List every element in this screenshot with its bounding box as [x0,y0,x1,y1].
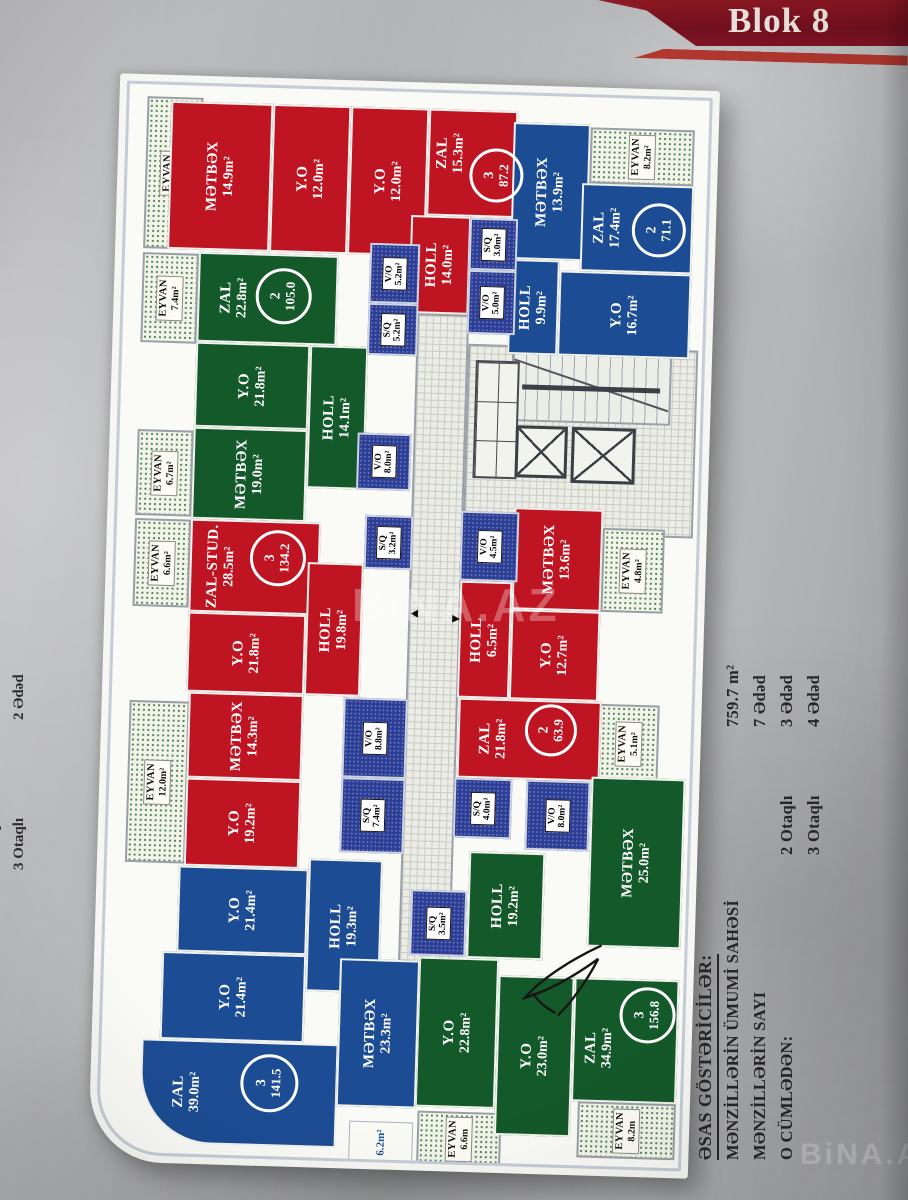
room-m-tb-x: MƏTBƏX14.9m² [167,101,273,252]
room-eyvan: EYVAN8.2m² [589,127,695,186]
room-name: ZAL [170,1075,187,1108]
apartment-badge-text: 3156.8 [632,1000,663,1030]
elevator-icon [514,425,568,479]
room-area: 12.0m² [388,161,405,202]
room-area: 6.7m² [164,461,176,485]
room-name: MƏTBƏX [619,827,638,898]
room-label: MƏTBƏX14.9m² [203,141,237,212]
apartment-badge-text: 3141.5 [254,1068,285,1098]
photo-background: { "banner": { "title": "Blok 8" }, "wate… [0,0,908,1200]
legend-rval: 2 Ədəd [11,674,28,720]
apartment-total-area: 87.2 [497,164,512,187]
legend-row: O CÜMLƏDƏN:2 Otaqlı3 Ədəd [777,620,804,1160]
room-area: 17.4m² [607,208,624,249]
room-area: 7.4m² [170,286,182,310]
room-y-o: Y.O21.4m² [160,951,307,1043]
legend-rlab: MƏNZİLLƏRİN ÜMUMİ SAHƏSİ [723,855,743,1160]
apartment-room-count: 3 [481,172,497,179]
room-area: 21.8m² [246,633,263,674]
room-area: 19.2m² [243,803,260,844]
legend-rlab: MƏNZİLLƏRİN SAYI [750,855,770,1160]
room-label: EYVAN4.8m² [619,548,647,594]
room-eyvan: EYVAN6.6m² [132,518,191,608]
legend-right: ƏSAS GÖSTƏRİCİLƏR: MƏNZİLLƏRİN ÜMUMİ SAH… [695,620,845,1160]
room-label: MƏTBƏX14.3m² [228,701,262,772]
room-area: 21.4m² [242,890,259,931]
room-name: V/O [384,265,395,282]
room-label: V/O8.8m² [362,721,388,754]
apartment-total-area: 71.1 [659,219,674,242]
room-area: 5.2m² [394,262,405,285]
room-y-o: Y.O16.7m² [557,270,691,359]
room-name: Y.O [217,983,234,1010]
room-eyvan: EYVAN7.4m² [140,252,199,344]
room-name: MƏTBƏX [541,524,560,595]
room-name: ZAL [434,136,451,169]
door-arrow-icon: ◀ [410,608,418,619]
room-label: V/O5.2m² [382,257,408,290]
room-area: 6.2m² [374,1129,387,1156]
floorplan-sheet: ◀ ▶ EYVAN10.8m²EYVAN7.4m²EYVAN6.7m²EYVAN… [88,73,720,1178]
room-area: 8.2m [626,1120,638,1141]
room-area: 14.9m² [220,156,237,197]
room-area: 25.0m² [636,843,653,884]
room-holl: HOLL6.5m² [457,581,512,699]
room-name: HOLL [517,284,535,330]
legend-rlab: 3 Otaqlı [11,720,28,870]
room-y-o: Y.O12.0m² [269,104,351,254]
room-name: MƏTBƏX [228,701,247,772]
room-area: 4.8m² [633,559,645,583]
room-area: 13.6m² [557,539,574,580]
room-name: MƏTBƏX [361,998,380,1069]
room-y-o: Y.O21.8m² [194,342,310,430]
room-eyvan: EYVAN8.2m [576,1101,676,1160]
room-s-q: S/Q3.0m² [469,218,519,271]
room-area: 5.1m² [629,732,641,756]
room-label: 6.2m² [374,1129,387,1156]
apartment-total-area: 134.2 [278,544,293,574]
legend-row: MƏNZİLLƏRİN ÜMUMİ SAHƏSİ759.7 m² [723,620,750,1160]
room-area: 3.0m² [493,233,504,256]
blok-banner: Blok 8 [632,0,908,46]
room-name: MƏTBƏX [533,156,552,227]
room-name: MƏTBƏX [203,141,222,212]
room-eyvan: EYVAN12.0m² [125,700,190,864]
room-area: 21.4m² [233,977,250,1018]
room-label: ZAL17.4m² [590,207,623,248]
room-name: V/O [364,729,375,746]
legend-rows: MƏNZİLLƏRİN ÜMUMİ SAHƏSİ759.7 m²MƏNZİLLƏ… [723,620,831,1160]
room-name: Y.O [236,372,253,399]
legend-rmid: 2 Otaqlı [777,727,797,855]
room-label: V/O5.0m² [479,286,505,319]
room-area: 19.3m² [344,906,361,947]
room-m-tb-x: MƏTBƏX25.0m² [587,777,686,950]
legend-row: 3 Otaqlı4 Ədəd [804,620,831,1160]
room-label: Y.O21.4m² [216,976,249,1017]
room-area: 6.6m² [162,551,174,575]
room-s-q: S/Q5.2m² [367,303,419,356]
room-label: EYVAN12.0m² [143,759,171,805]
room-y-o: Y.O22.8m² [415,957,499,1109]
room-name: Y.O [518,1042,535,1069]
room-name: EYVAN [158,279,171,317]
apartment-room-count: 2 [536,726,552,733]
room-name: Y.O [538,642,555,669]
room-label: HOLL9.9m² [517,284,550,330]
legend-left: 2 Otaqlı2 Ədəd3 Otaqlı2 Ədəd [0,570,38,870]
room-name: ZAL [590,211,607,244]
room-y-o: Y.O19.2m² [184,778,302,869]
room-label: Y.O12.0m² [294,158,327,199]
room-name: EYVAN [617,725,630,763]
room-area: 8.0m² [557,804,568,827]
room-y-o: Y.O21.8m² [186,612,306,695]
room-name: S/Q [362,808,373,824]
room-label: ZAL22.8m² [217,277,250,318]
room-name: MƏTBƏX [232,439,251,510]
room-label: EYVAN6.7m² [150,450,178,496]
room-name: Y.O [608,301,625,328]
room-name: Y.O [226,897,243,924]
room-label: S/Q3.5m² [425,906,451,939]
room-name: EYVAN [150,544,163,582]
legend-row: 2 Otaqlı2 Ədəd [0,570,11,870]
room-s-q: S/Q4.0m² [453,778,513,840]
room-area: 19.8m² [334,609,351,650]
room-area: 21.8m² [252,366,269,407]
room-y-o: Y.O23.0m² [494,975,575,1137]
room-area: 14.3m² [245,716,262,757]
room-label: EYVAN5.1m² [615,721,643,767]
room-v-o: V/O8.0m² [524,780,590,852]
legend-rmid: 3 Otaqlı [804,727,824,855]
room-area: 13.9m² [550,171,567,212]
room-area: 8.2m² [642,145,654,169]
room-area: 22.8m² [234,278,251,319]
room-area: 14.0m² [440,245,457,286]
balcony-strip: 6.2m² [348,1121,413,1165]
legend-rlab: 2 Otaqlı [0,720,3,870]
room-label: V/O8.0m² [371,445,397,478]
room-label: HOLL6.5m² [468,617,501,663]
room-name: V/O [481,294,492,311]
staircase [510,349,672,426]
room-area: 22.8m² [457,1013,474,1054]
room-label: EYVAN8.2m [612,1108,640,1154]
room-m-tb-x: MƏTBƏX13.9m² [510,122,591,261]
room-name: V/O [547,807,558,824]
room-name: Y.O [294,165,311,192]
legend-rval: 2 Ədəd [0,674,3,720]
room-label: MƏTBƏX13.9m² [533,156,567,227]
room-area: 19.0m² [249,454,266,495]
room-area: 14.1m² [337,397,354,438]
room-name: Y.O [441,1019,458,1046]
room-name: V/O [479,538,490,555]
room-area: 23.3m² [378,1013,395,1054]
room-label: Y.O21.8m² [230,633,263,674]
room-area: 21.8m² [493,719,510,760]
room-name: Y.O [230,640,247,667]
room-area: 3.5m² [438,912,449,935]
room-name: ZAL [217,281,234,314]
room-name: HOLL [423,242,441,288]
room-label: ZAL15.3m² [434,132,467,173]
room-name: EYVAN [630,138,643,176]
room-holl: HOLL19.2m² [466,851,545,960]
room-label: V/O8.0m² [545,799,571,832]
room-s-q: S/Q7.4m² [339,777,405,854]
room-label: Y.O16.7m² [608,294,641,335]
room-area: 5.2m² [392,318,403,341]
room-name: Y.O [226,810,243,837]
room-area: 12.0m² [157,767,169,796]
room-name: S/Q [382,322,393,338]
room-label: MƏTBƏX25.0m² [619,827,653,898]
room-name: S/Q [428,915,439,931]
room-label: EYVAN6.6m [445,1116,473,1162]
apartment-badge-text: 271.1 [644,219,674,243]
room-area: 23.0m² [534,1036,551,1077]
legend-rval: 4 Ədəd [804,675,824,727]
room-m-tb-x: MƏTBƏX19.0m² [191,427,308,522]
room-name: S/Q [472,800,483,816]
apartment-badge-text: 263.9 [536,719,566,743]
room-label: V/O4.5m² [476,530,502,563]
apartment-room-count: 2 [644,226,660,233]
room-label: Y.O21.4m² [226,890,259,931]
room-label: EYVAN6.6m² [148,540,176,586]
room-v-o: V/O5.0m² [467,270,517,335]
plan-area: ◀ ▶ EYVAN10.8m²EYVAN7.4m²EYVAN6.7m²EYVAN… [95,81,713,1172]
legend-rval: 759.7 m² [723,665,743,727]
room-s-q: S/Q3.5m² [409,889,467,957]
room-area: 15.3m² [451,133,468,174]
room-label: HOLL14.1m² [321,394,354,440]
room-m-tb-x: MƏTBƏX13.6m² [512,507,604,612]
room-area: 28.5m² [221,546,238,587]
room-name: V/O [373,453,384,470]
banner-title: Blok 8 [728,1,830,41]
room-label: S/Q3.0m² [480,228,506,261]
door-arrow-icon: ▶ [452,613,460,624]
room-label: S/Q5.2m² [380,313,406,346]
room-label: ZAL34.9m² [583,1027,616,1068]
room-name: HOLL [468,617,486,663]
room-label: MƏTBƏX19.0m² [232,439,266,510]
room-name: S/Q [483,237,494,253]
room-name: ZAL [477,722,494,755]
room-m-tb-x: MƏTBƏX23.3m² [336,958,420,1108]
room-area: 3.2m² [388,531,399,554]
room-label: HOLL19.2m² [489,882,522,928]
apartment-total-area: 156.8 [648,1001,663,1031]
room-v-o: V/O5.2m² [369,243,421,304]
room-area: 19.2m² [506,885,523,926]
room-label: EYVAN7.4m² [156,275,184,321]
room-y-o: Y.O12.7m² [509,609,601,702]
room-label: MƏTBƏX23.3m² [361,998,395,1069]
room-name: EYVAN [447,1120,460,1158]
room-area: 16.7m² [624,295,641,336]
room-label: EYVAN8.2m² [628,134,656,180]
room-area: 5.0m² [491,291,502,314]
apartment-total-area: 105.0 [284,282,299,312]
room-label: HOLL19.8m² [317,606,350,652]
room-name: EYVAN [614,1112,627,1150]
stair-landing-bar [522,384,659,393]
room-s-q: S/Q3.2m² [364,515,414,570]
room-name: S/Q [378,535,389,551]
room-area: 4.0m² [482,797,493,820]
room-label: Y.O19.2m² [226,803,259,844]
room-area: 6.6m [459,1128,471,1149]
room-eyvan: EYVAN6.7m² [135,429,194,517]
room-area: 39.0m² [187,1072,204,1113]
room-name: EYVAN [153,454,166,492]
room-label: Y.O22.8m² [440,1012,473,1053]
room-eyvan: EYVAN6.6m [416,1111,502,1167]
room-label: Y.O12.0m² [372,161,405,202]
room-m-tb-x: MƏTBƏX14.3m² [186,692,304,781]
room-area: 6.5m² [485,623,501,657]
room-label: MƏTBƏX13.6m² [541,524,575,595]
banner-stripe [634,48,908,66]
room-label: HOLL19.3m² [327,903,360,949]
room-name: HOLL [489,882,507,928]
room-area: 8.0m² [384,451,395,474]
room-label: HOLL14.0m² [423,242,456,288]
room-label: Y.O23.0m² [518,1035,551,1076]
room-y-o: Y.O21.4m² [176,865,308,955]
apartment-badge-text: 387.2 [481,164,511,188]
room-area: 4.5m² [489,535,500,558]
room-name: ZAL-STUD. [204,524,223,609]
room-name: ZAL [583,1031,600,1064]
room-label: Y.O21.8m² [236,365,269,406]
room-area: 8.8m² [374,727,385,750]
room-v-o: V/O8.0m² [356,433,412,492]
legend-row: 3 Otaqlı2 Ədəd [11,570,36,870]
room-area: 12.7m² [555,635,572,676]
room-name: HOLL [317,606,335,652]
room-area: 9.9m² [534,291,550,325]
room-area: 12.0m² [310,159,327,200]
legend-rval: 7 Ədəd [750,675,770,727]
room-eyvan: EYVAN5.1m² [597,704,659,784]
room-holl: HOLL19.8m² [304,562,364,697]
room-name: EYVAN [621,552,634,590]
room-zal: ZAL39.0m² [139,1038,339,1148]
apartment-badge-text: 2105.0 [268,281,299,311]
room-name: Y.O [372,168,389,195]
room-label: ZAL39.0m² [170,1071,203,1112]
elevator-icon [570,427,636,485]
apartment-total-area: 63.9 [551,719,566,742]
room-label: S/Q7.4m² [359,799,385,832]
room-label: ZAL21.8m² [477,718,510,759]
room-area: 7.4m² [372,804,383,827]
room-name: HOLL [321,394,339,440]
room-v-o: V/O4.5m² [459,511,519,583]
legend-row: MƏNZİLLƏRİN SAYI7 Ədəd [750,620,777,1160]
room-label: S/Q3.2m² [376,526,402,559]
room-eyvan: EYVAN4.8m² [601,528,665,614]
legend-title: ƏSAS GÖSTƏRİCİLƏR: [695,954,719,1160]
room-label: ZAL-STUD.28.5m² [204,524,238,609]
room-label: Y.O12.7m² [538,635,571,676]
legend-rval: 3 Ədəd [777,675,797,727]
shaft-grid [472,360,519,479]
room-name: HOLL [327,903,345,949]
room-v-o: V/O8.8m² [341,697,407,779]
apartment-total-area: 141.5 [269,1069,284,1099]
apartment-badge-text: 3134.2 [263,543,294,573]
room-label: S/Q4.0m² [470,792,496,825]
room-area: 34.9m² [599,1028,616,1069]
legend-rlab: O CÜMLƏDƏN: [777,855,797,1160]
